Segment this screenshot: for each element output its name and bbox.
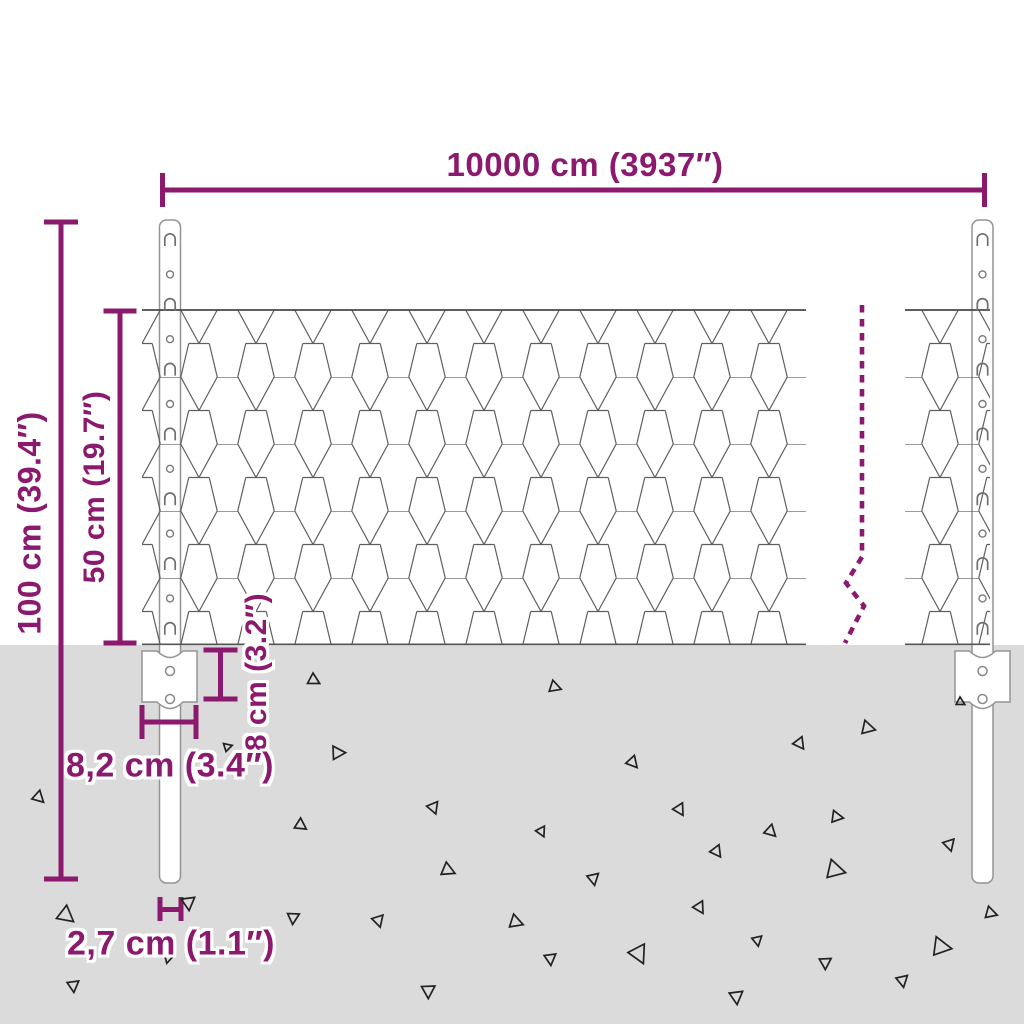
fence-dimension-diagram: 10000 cm (3937″) 100 cm (39.4″) 50 cm (1… <box>0 0 1024 1024</box>
post-hole <box>167 401 174 408</box>
post-hole <box>167 271 174 278</box>
dim-post-thickness-label: 2,7 cm (1.1″) <box>67 925 275 964</box>
post-hole <box>979 595 986 602</box>
dim-mesh-height-label: 50 cm (19.7″) <box>78 391 112 584</box>
post-hole <box>167 465 174 472</box>
post-hole <box>167 530 174 537</box>
post-hole <box>979 465 986 472</box>
post-hole <box>979 336 986 343</box>
mesh-right-section <box>905 310 990 645</box>
post-hole <box>979 271 986 278</box>
post-hole <box>167 336 174 343</box>
post-hole <box>167 595 174 602</box>
dim-total-width-label: 10000 cm (3937″) <box>447 146 724 184</box>
length-break-dashed-line <box>845 305 864 643</box>
post-hole <box>979 530 986 537</box>
dim-anchor-depth-label: 8 cm (3.2″) <box>240 593 274 751</box>
dim-post-height-label: 100 cm (39.4″) <box>12 411 49 634</box>
dim-anchor-width-label: 8,2 cm (3.4″) <box>66 747 274 786</box>
post-hole <box>979 401 986 408</box>
